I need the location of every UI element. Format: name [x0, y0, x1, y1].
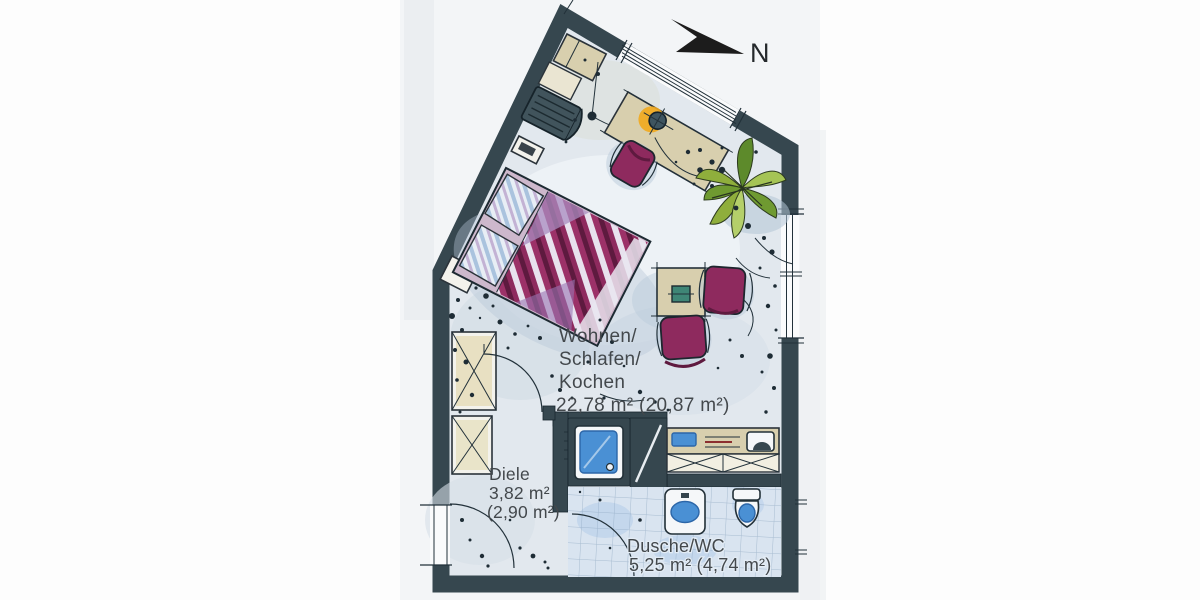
floor-speckle — [609, 547, 612, 550]
floor-speckle — [697, 167, 703, 173]
floor-plan-page: N Wohnen/ Schlafen/ Kochen 22,78 m² (20,… — [0, 0, 1200, 600]
floor-speckle — [773, 284, 777, 288]
floor-speckle — [762, 236, 766, 240]
floor-speckle — [469, 539, 472, 542]
floor-speckle — [459, 411, 462, 414]
floor-speckle — [531, 554, 536, 559]
floor-speckle — [775, 329, 778, 332]
floor-speckle — [584, 59, 587, 62]
floor-speckle — [460, 328, 464, 332]
floor-speckle — [480, 554, 484, 558]
floor-speckle — [460, 518, 464, 522]
hall-label-area: 3,82 m² — [489, 483, 550, 503]
floor-speckle — [759, 267, 762, 270]
floor-speckle — [754, 150, 758, 154]
north-label: N — [750, 38, 770, 68]
kitchen-bath-wall — [667, 474, 781, 487]
living-label-line2: Schlafen/ — [559, 349, 641, 370]
floor-speckle — [470, 393, 474, 397]
floor-speckle — [498, 320, 503, 325]
living-label-area: 22,78 m² (20,87 m²) — [556, 395, 730, 416]
bath-label-name: Dusche/WC — [627, 536, 725, 556]
kitchenette — [667, 428, 779, 472]
shower-drain — [607, 464, 614, 471]
floor-speckle — [734, 206, 739, 211]
floor-speckle — [456, 298, 460, 302]
kitchen-sink — [672, 433, 696, 446]
floor-speckle — [766, 304, 770, 308]
floor-speckle — [538, 336, 542, 340]
living-label-line1: Wohnen/ — [559, 326, 637, 347]
floor-speckle — [710, 184, 714, 188]
doorway-stub — [543, 406, 555, 420]
floor-speckle — [719, 167, 725, 173]
kitchen-hob — [747, 432, 774, 451]
kitchen-base-cabinets — [667, 454, 779, 472]
floor-speckle — [483, 293, 489, 299]
floor-speckle — [709, 159, 714, 164]
floor-speckle — [761, 371, 764, 374]
floor-speckle — [449, 313, 455, 319]
floor-speckle — [492, 305, 495, 308]
floor-speckle — [453, 348, 457, 352]
floor-speckle — [455, 378, 459, 382]
floor-speckle — [698, 148, 702, 152]
hall-label-area-paren: (2,90 m²) — [487, 502, 560, 522]
floor-speckle — [469, 307, 472, 310]
floor-speckle — [550, 374, 554, 378]
floor-speckle — [518, 546, 521, 549]
shower — [568, 418, 630, 486]
floor-speckle — [772, 386, 776, 390]
floor-speckle — [573, 118, 577, 122]
floor-speckle — [729, 339, 732, 342]
floor-speckle — [686, 150, 690, 154]
floor-speckle — [513, 332, 517, 336]
hall-bath-wall — [553, 412, 568, 512]
floor-speckle — [507, 347, 510, 350]
floor-speckle — [717, 367, 720, 370]
floor-speckle — [721, 147, 724, 150]
floor-speckle — [767, 353, 773, 359]
washbasin — [665, 489, 705, 534]
floor-speckle — [764, 410, 767, 413]
living-label-line3: Kochen — [559, 372, 625, 393]
floor-speckle — [599, 499, 602, 502]
floor-speckle — [693, 183, 696, 186]
floor-speckle — [638, 518, 642, 522]
bath-label-area: 5,25 m² (4,74 m²) — [629, 555, 771, 575]
floor-speckle — [596, 72, 600, 76]
floor-speckle — [740, 354, 744, 358]
floor-speckle — [486, 564, 489, 567]
hall-label-name: Diele — [489, 464, 530, 484]
floor-speckle — [638, 390, 642, 394]
floor-speckle — [745, 223, 751, 229]
floor-speckle — [579, 491, 581, 493]
floor-speckle — [474, 286, 477, 289]
floor-speckle — [544, 561, 547, 564]
floor-speckle — [527, 325, 530, 328]
wardrobe-lower — [452, 416, 492, 474]
duct-shaft — [630, 418, 667, 488]
floor-speckle — [565, 141, 568, 144]
wardrobe-upper — [452, 332, 496, 410]
floor-speckle — [479, 317, 481, 319]
floor-speckle — [464, 360, 469, 365]
floor-speckle — [769, 249, 774, 254]
floor-speckle — [599, 319, 602, 322]
floor-speckle — [675, 161, 678, 164]
floor-speckle — [547, 567, 550, 570]
floor-plan-drawing: N Wohnen/ Schlafen/ Kochen 22,78 m² (20,… — [0, 0, 1200, 600]
